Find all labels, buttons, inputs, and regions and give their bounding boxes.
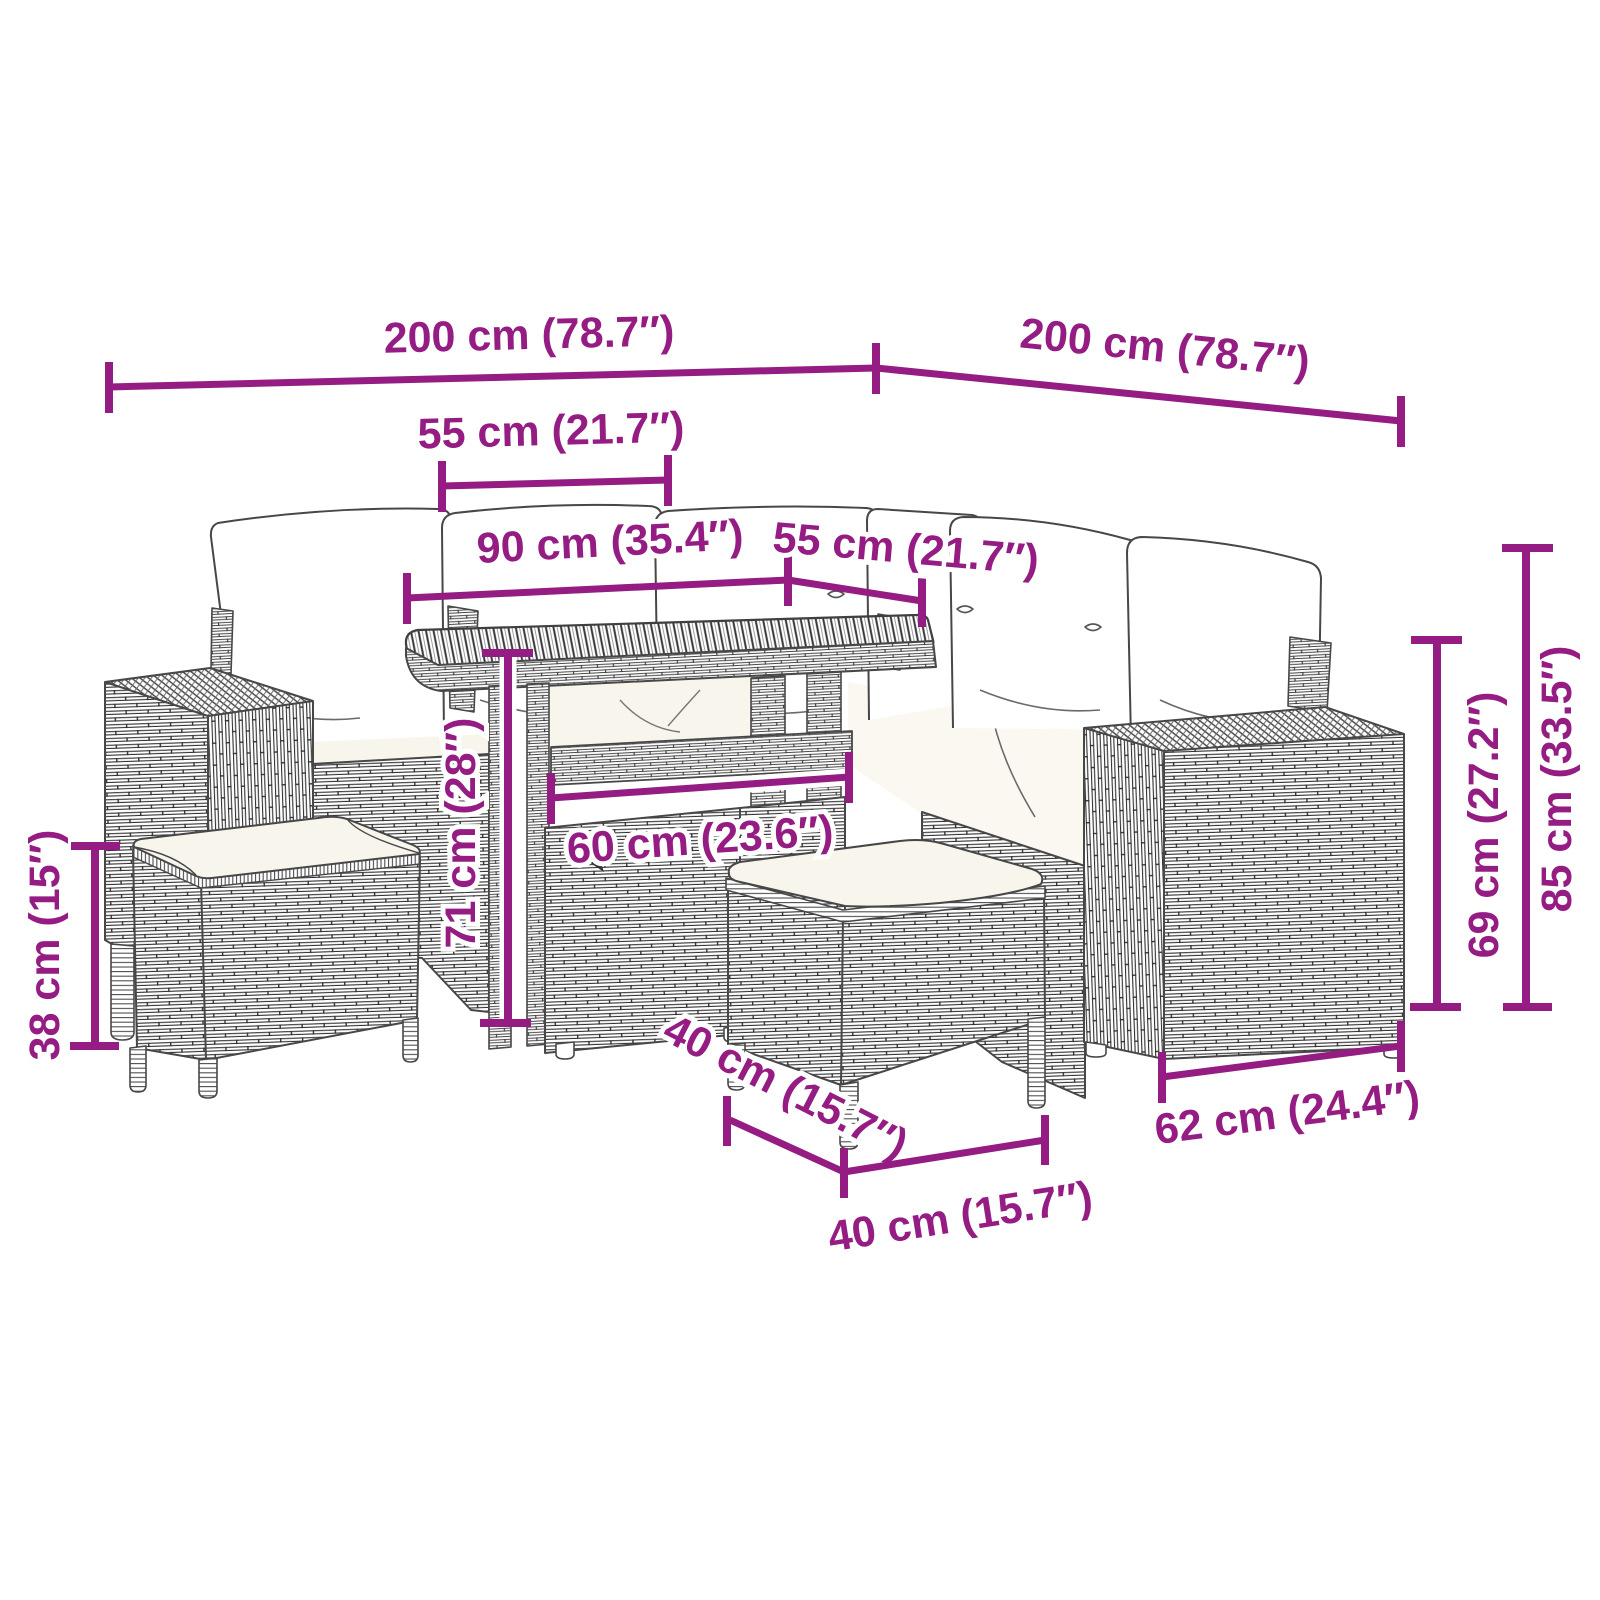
svg-text:38 cm (15″): 38 cm (15″) xyxy=(21,830,69,1061)
svg-text:85 cm (33.5″): 85 cm (33.5″) xyxy=(1533,646,1581,913)
svg-text:55 cm (21.7″): 55 cm (21.7″) xyxy=(417,404,685,459)
svg-text:71 cm (28″): 71 cm (28″) xyxy=(437,718,485,949)
svg-text:200 cm (78.7″): 200 cm (78.7″) xyxy=(383,307,675,363)
svg-text:69 cm (27.2″): 69 cm (27.2″) xyxy=(1460,692,1508,959)
